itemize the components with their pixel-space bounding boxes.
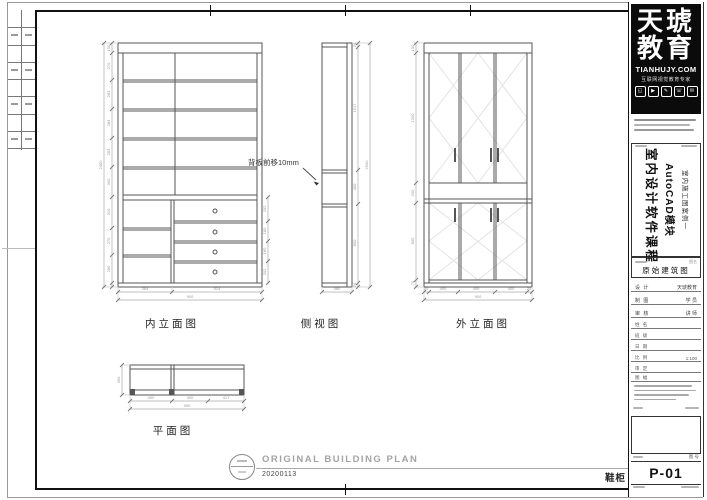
detail-bubble-icon <box>229 454 255 480</box>
field-label: 审 核 <box>635 310 649 317</box>
illegible-text-line <box>681 145 697 147</box>
dim-label: 400 <box>473 286 480 291</box>
view-titles: 内立面图 侧视图 外立面图 平面图 <box>145 317 510 437</box>
field-row: 设 计 天琥教育 <box>631 279 701 292</box>
dim-label: 310 <box>106 208 111 215</box>
side-view-drawing <box>322 43 352 287</box>
field-value: 天琥教育 <box>677 284 697 291</box>
dim-label: 1300 <box>410 113 415 123</box>
door-swing-diagonals <box>429 53 527 280</box>
illegible-text-line <box>634 119 696 121</box>
dim-label: 460 <box>334 286 341 291</box>
footer-item-name: 鞋柜 <box>600 470 626 484</box>
dim-label: 20 <box>352 282 357 287</box>
sheet-no-caption-row: 图 号 <box>633 454 699 460</box>
brand-website: TIANHUJY.COM <box>631 65 701 74</box>
illegible-text-line <box>634 129 694 131</box>
field-label: 设 计 <box>635 284 649 291</box>
illegible-text-line <box>635 145 647 147</box>
field-row: 姓 名 <box>631 318 701 329</box>
field-label: 日 期 <box>635 344 648 350</box>
view-title-plan: 平面图 <box>153 425 194 437</box>
cad-drawing-canvas: 100 270 283 283 283 300 310 270 280 2400… <box>0 0 707 500</box>
view-title-interior: 内立面图 <box>145 317 199 330</box>
dim-label: 280 <box>106 265 111 272</box>
dim-total: 900 <box>184 403 191 408</box>
brand-slogan: 互联网视觉教育专家 <box>631 76 701 83</box>
dim-label: 417 <box>223 395 230 400</box>
course-case-label: 室内施工图案例一 <box>677 148 691 252</box>
dim-label: 800 <box>410 237 415 244</box>
dim-label: 400 <box>440 286 447 291</box>
field-row: 审 定 <box>631 362 701 373</box>
dim-total: 900 <box>187 294 194 299</box>
course-box: 室内施工图案例一 AutoCAD模块 室内设计软件课程 <box>631 143 701 257</box>
dim-total: 2500 <box>364 160 369 170</box>
dim-label: 350 <box>116 376 121 383</box>
dim-label: 283 <box>106 148 111 155</box>
brand-name-bottom: 教育 <box>631 35 701 62</box>
field-label: 图 幅 <box>635 375 648 381</box>
illegible-text-line <box>634 385 692 387</box>
field-label: 班 级 <box>635 333 648 339</box>
dim-label: 283 <box>106 119 111 126</box>
field-row: 日 期 <box>631 340 701 351</box>
logo-badge-icon: ✉ <box>687 86 698 97</box>
logo-badge-icon: ▶ <box>648 86 659 97</box>
dim-label: 20 <box>352 42 357 47</box>
dim-label: 70 <box>410 280 415 285</box>
leader-arrow-icon <box>314 182 320 186</box>
caption-row <box>633 407 699 409</box>
illegible-text-line <box>634 399 676 401</box>
field-value: 1:100 <box>686 356 697 361</box>
logo-badge-icon: ☏ <box>674 86 685 97</box>
field-row: 审 核 讲 师 <box>631 305 701 318</box>
field-label: 制 图 <box>635 297 649 304</box>
field-value: 学 员 <box>686 297 697 304</box>
title-block: 天琥 教育 TIANHUJY.COM 互联网视觉教育专家 ◱ ▶ ✎ ☏ ✉ 室… <box>628 2 704 497</box>
plan-view-drawing <box>130 365 244 395</box>
dim-label: 400 <box>508 286 515 291</box>
illegible-text-line <box>633 486 645 488</box>
dimension-ticks <box>102 41 534 411</box>
dim-label: 800 <box>352 239 357 246</box>
illegible-text-line <box>635 261 647 263</box>
field-value: 讲 师 <box>686 310 697 317</box>
logo-badge-icon: ✎ <box>661 86 672 97</box>
interior-elevation-drawing <box>118 43 262 287</box>
dim-label: 400 <box>352 183 357 190</box>
dim-label: 180 <box>262 247 267 254</box>
dimension-labels: 100 270 283 283 283 300 310 270 280 2400… <box>98 42 532 408</box>
illegible-text-line <box>633 407 643 409</box>
dim-total: 900 <box>475 294 482 299</box>
course-title-label: 室内设计软件课程 <box>641 148 660 252</box>
field-row: 图 幅 <box>631 373 701 382</box>
view-title-side: 侧视图 <box>301 317 342 330</box>
drawing-name-box: 图名 原始建筑图 <box>631 257 701 278</box>
company-info <box>634 117 698 141</box>
dim-label: 300 <box>106 178 111 185</box>
field-label: 姓 名 <box>635 322 648 328</box>
logo-badge-icon: ◱ <box>635 86 646 97</box>
notes-block <box>634 382 698 406</box>
dimension-lines <box>102 43 532 410</box>
sheet-no-label: 图 号 <box>689 454 699 460</box>
dim-label: 270 <box>106 237 111 244</box>
dim-label: 100 <box>106 44 111 51</box>
drawing-name: 原始建筑图 <box>632 265 700 276</box>
course-module-label: AutoCAD模块 <box>660 148 677 252</box>
dim-label: 400 <box>148 395 155 400</box>
dim-label: 400 <box>187 395 194 400</box>
dim-label: 20 <box>424 286 429 291</box>
leader-line <box>303 168 316 180</box>
dim-label: 514 <box>214 286 221 291</box>
annotation-text: 背板前移10mm <box>248 157 299 167</box>
drawing-name-label: 图名 <box>689 259 697 265</box>
footer-title-en: ORIGINAL BUILDING PLAN <box>262 454 418 465</box>
bottom-row <box>633 486 699 488</box>
drawing-sheet: 100 270 283 283 283 300 310 270 280 2400… <box>0 0 707 500</box>
dim-label: 283 <box>106 90 111 97</box>
dim-label: 270 <box>106 62 111 69</box>
illegible-text-line <box>633 456 643 458</box>
illegible-text-line <box>681 486 699 488</box>
field-row: 比 例 1:100 <box>631 351 701 362</box>
field-row: 制 图 学 员 <box>631 292 701 305</box>
dim-label: 202 <box>262 205 267 212</box>
dim-total: 2400 <box>98 160 103 170</box>
field-label: 审 定 <box>635 366 648 372</box>
remarks-box <box>631 416 701 454</box>
dim-label: 1517 <box>352 103 357 113</box>
illegible-text-line <box>685 407 699 409</box>
illegible-text-line <box>634 124 690 126</box>
footer-date: 20200113 <box>262 471 297 478</box>
field-row: 班 级 <box>631 329 701 340</box>
dim-label: 180 <box>262 227 267 234</box>
view-title-exterior: 外立面图 <box>456 317 510 330</box>
footer-underline <box>256 468 628 469</box>
dim-label: 200 <box>410 189 415 196</box>
brand-name-top: 天琥 <box>631 4 701 35</box>
back-panel-annotation: 背板前移10mm <box>248 157 319 186</box>
course-vertical-text: 室内施工图案例一 AutoCAD模块 室内设计软件课程 <box>641 148 691 252</box>
illegible-text-line <box>634 394 689 396</box>
dim-label: 202 <box>262 268 267 275</box>
dim-label: 364 <box>142 286 149 291</box>
brand-logo: 天琥 教育 TIANHUJY.COM 互联网视觉教育专家 ◱ ▶ ✎ ☏ ✉ <box>631 4 701 114</box>
illegible-text-line <box>634 390 696 392</box>
sheet-number: P-01 <box>631 461 701 485</box>
dim-label: 100 <box>410 44 415 51</box>
brand-badges: ◱ ▶ ✎ ☏ ✉ <box>631 86 701 97</box>
dim-label: 20 <box>527 286 532 291</box>
field-label: 比 例 <box>635 355 648 361</box>
